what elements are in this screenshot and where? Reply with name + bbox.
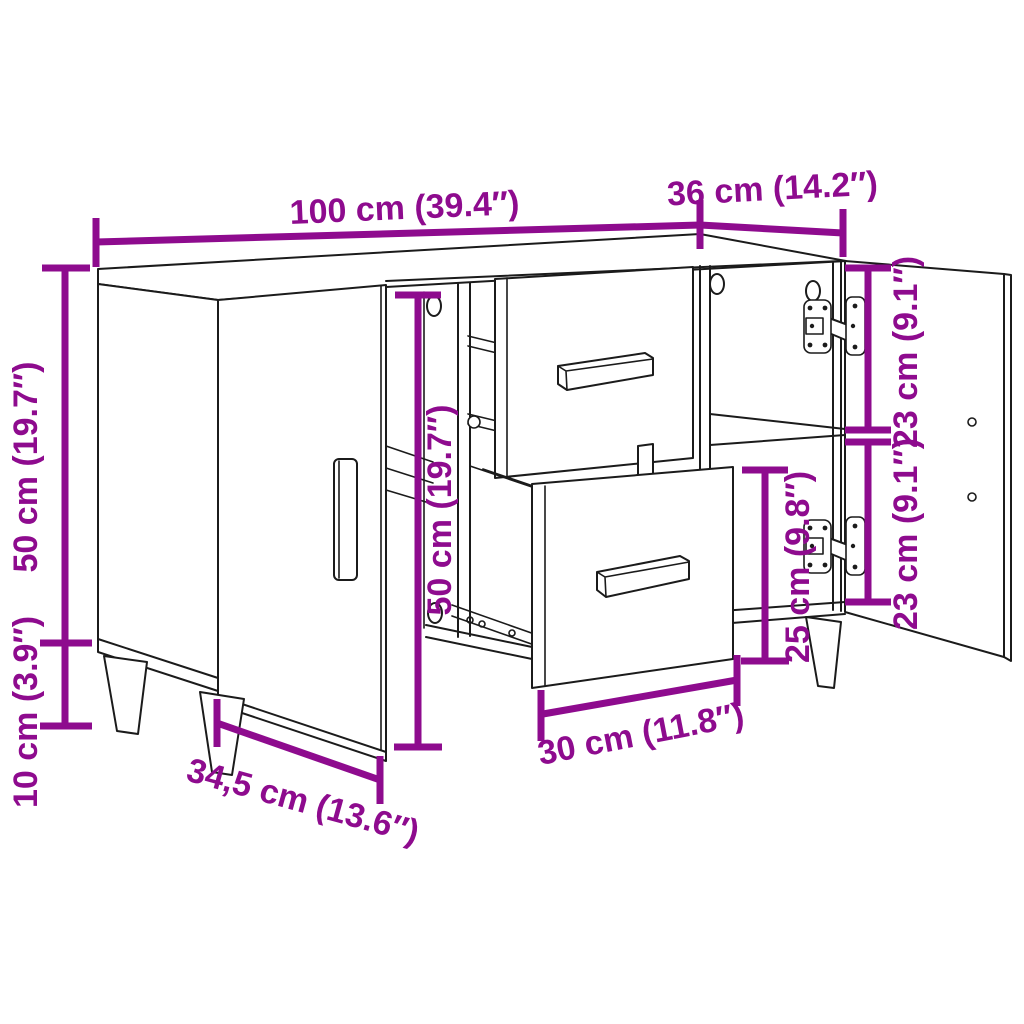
- furniture-line-art: [98, 234, 1011, 775]
- rail-roller: [468, 416, 480, 428]
- drawer-rail: [468, 336, 497, 353]
- dim-label-compartment-bottom: 23 cm (9.1″): [887, 438, 925, 630]
- dim-label-depth: 36 cm (14.2″): [666, 165, 879, 214]
- floor-left-bay: [426, 625, 532, 659]
- pin-hole: [806, 281, 820, 301]
- hinge-top: [804, 297, 865, 355]
- rail-screw: [509, 630, 515, 636]
- cabinet-top: [98, 234, 846, 300]
- dim-label-door-width: 34,5 cm (13.6″): [183, 751, 424, 852]
- left-door-handle: [334, 459, 357, 580]
- dim-label-body-height: 50 cm (19.7″): [7, 362, 45, 573]
- dim-label-compartment-top: 23 cm (9.1″): [887, 256, 925, 448]
- leg-front-left: [104, 656, 147, 734]
- bottom-drawer-rail: [452, 605, 540, 647]
- diagram-canvas: 100 cm (39.4″) 36 cm (14.2″) 50 cm (19.7…: [0, 0, 1024, 1024]
- dim-label-front-height: 50 cm (19.7″): [421, 405, 459, 616]
- dim-label-leg-height: 10 cm (3.9″): [7, 616, 45, 808]
- dimension-diagram: 100 cm (39.4″) 36 cm (14.2″) 50 cm (19.7…: [0, 0, 1024, 1024]
- left-side-panel: [98, 284, 218, 691]
- left-door: [218, 285, 386, 752]
- shelf: [710, 414, 845, 445]
- dim-label-width: 100 cm (39.4″): [289, 184, 520, 232]
- pin-hole: [427, 296, 441, 316]
- dim-line-depth: [700, 225, 843, 233]
- right-door-thickness: [1004, 274, 1011, 661]
- pin-hole: [710, 274, 724, 294]
- hinge-plate-boss: [806, 318, 823, 334]
- dim-label-drawer-height: 25 cm (9.8″): [779, 471, 817, 663]
